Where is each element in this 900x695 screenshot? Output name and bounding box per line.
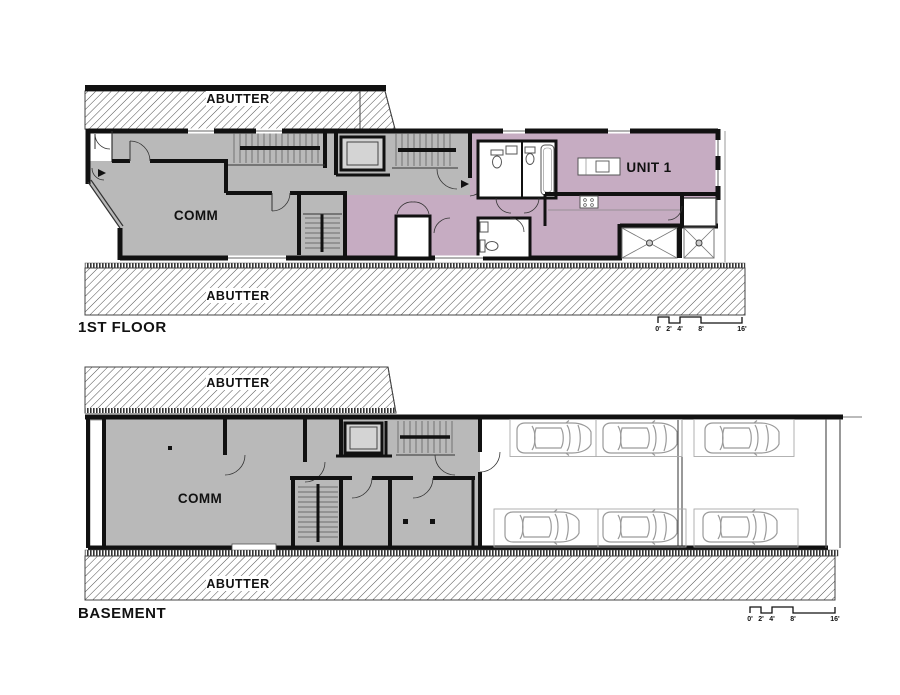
bathroom: [478, 218, 530, 258]
first-floor-plan: ABUTTER: [78, 85, 747, 336]
scale-label: 4': [677, 326, 683, 333]
floor-plan-sheet: ABUTTER: [0, 0, 900, 695]
car-icon: [505, 510, 579, 545]
scale-label: 8': [790, 616, 796, 623]
scale-label: 2': [758, 616, 764, 623]
column: [430, 519, 435, 524]
floor-plan-drawing: ABUTTER: [0, 0, 900, 695]
column: [168, 446, 172, 450]
scale-label: 16': [830, 616, 840, 623]
comm-room-label: COMM: [178, 491, 222, 506]
first-floor-building: COMM UNIT 1: [88, 129, 725, 263]
scale-label: 8': [698, 326, 704, 333]
scale-bar: 0' 2' 4' 8' 16': [655, 317, 747, 333]
scale-label: 16': [737, 326, 747, 333]
garage-boundary: [480, 419, 500, 548]
elevator-icon: [336, 131, 390, 175]
column: [403, 519, 408, 524]
scale-bar: 0' 2' 4' 8' 16': [747, 607, 840, 623]
abutter-label: ABUTTER: [206, 577, 269, 591]
first-floor-abutter-bottom: ABUTTER: [85, 263, 745, 315]
bathtub-icon: [541, 145, 554, 195]
sink-icon: [506, 146, 517, 154]
car-icon: [603, 421, 677, 456]
abutter-label: ABUTTER: [206, 289, 269, 303]
scale-label: 0': [747, 616, 753, 623]
scale-label: 4': [769, 616, 775, 623]
door-arc: [480, 452, 500, 472]
stove-icon: [580, 196, 598, 208]
comm-room-label: COMM: [174, 208, 218, 223]
basement-abutter-bottom: ABUTTER: [85, 550, 838, 600]
car-icon: [603, 510, 677, 545]
toilet-icon: [491, 150, 503, 155]
toilet-icon: [525, 147, 535, 153]
deck: [622, 228, 714, 258]
scale-label: 2': [666, 326, 672, 333]
sink-icon: [596, 161, 609, 172]
basement-plan: ABUTTER COMM: [78, 367, 862, 623]
unit1-label: UNIT 1: [626, 160, 671, 175]
first-floor-abutter-top: ABUTTER: [85, 85, 395, 129]
basement-title: BASEMENT: [78, 605, 166, 622]
sink-icon: [480, 222, 488, 232]
toilet-icon: [480, 240, 485, 252]
car-icon: [517, 421, 591, 456]
scale-label: 0': [655, 326, 661, 333]
parking-garage: [494, 419, 840, 548]
areaway: [90, 420, 104, 547]
abutter-label: ABUTTER: [206, 376, 269, 390]
first-floor-title: 1ST FLOOR: [78, 319, 167, 336]
basement-building: COMM: [85, 417, 862, 551]
abutter-label: ABUTTER: [206, 92, 269, 106]
car-icon: [703, 510, 777, 545]
car-icon: [705, 421, 779, 456]
basement-abutter-top: ABUTTER: [85, 367, 396, 413]
